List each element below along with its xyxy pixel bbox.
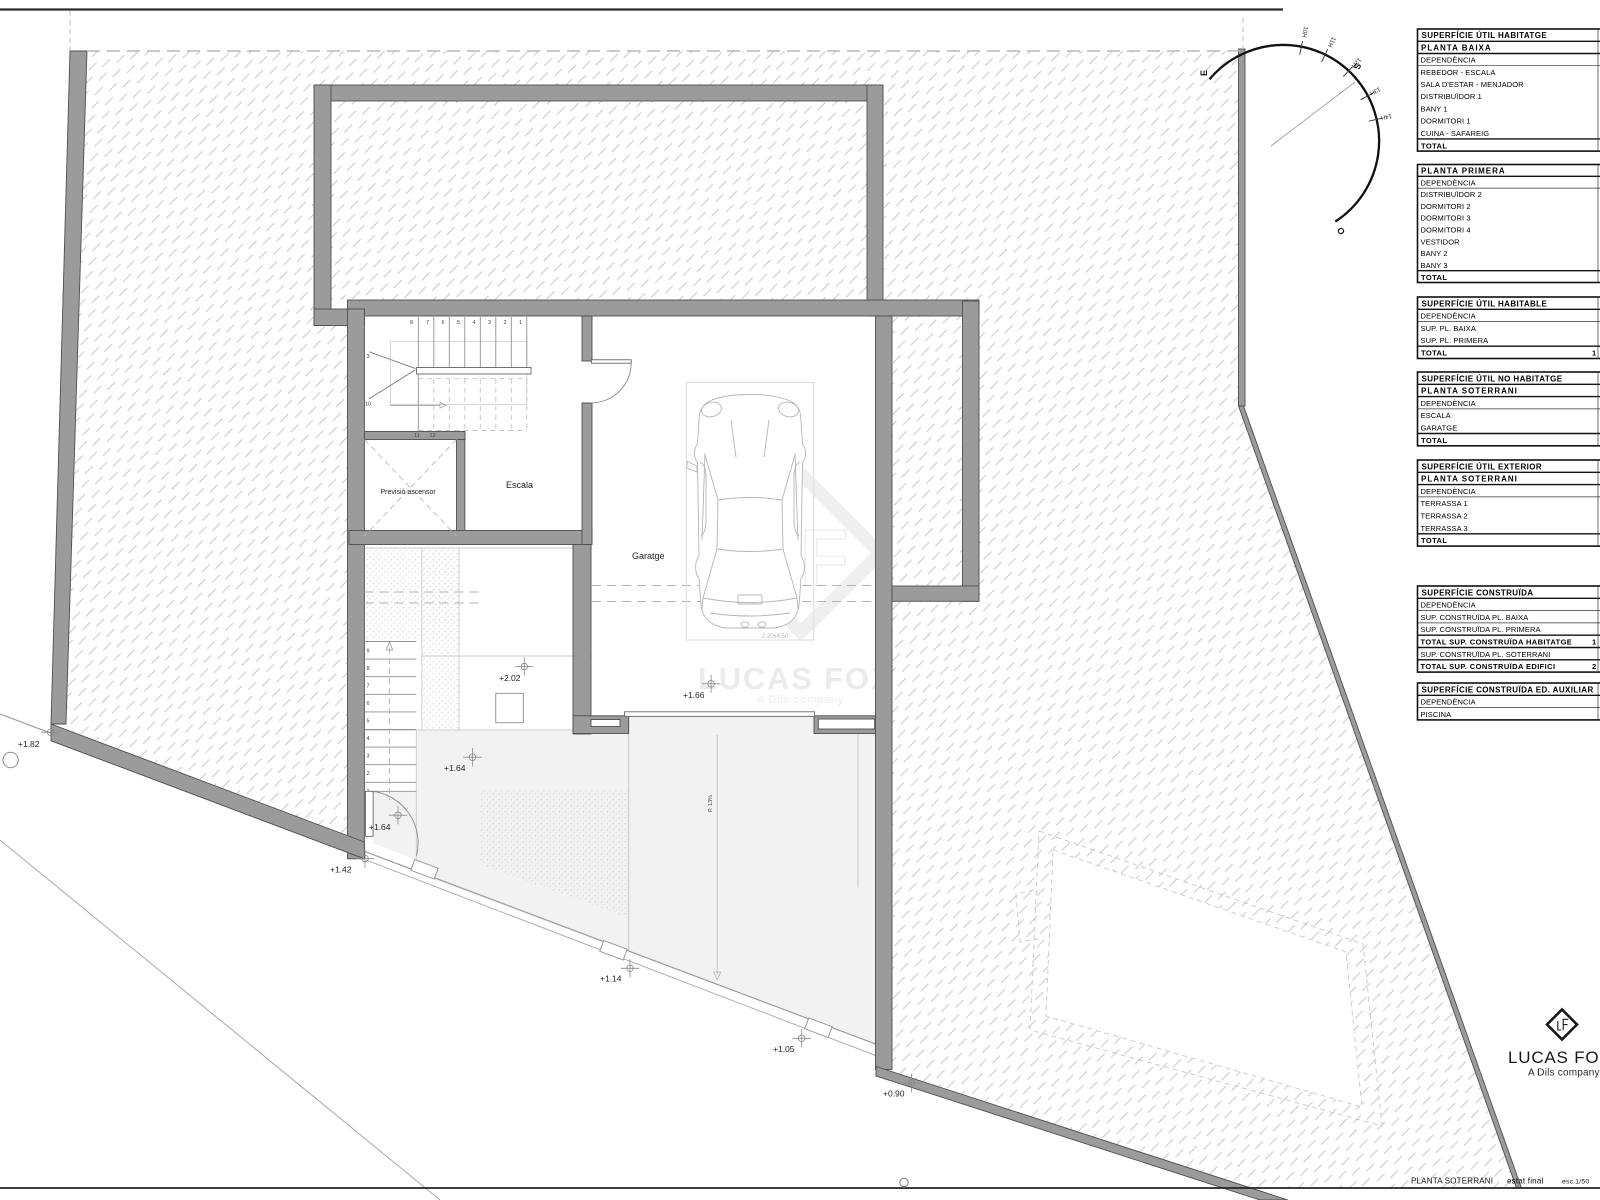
svg-text:Escala: Escala: [506, 480, 533, 490]
svg-text:TOTAL SUP. CONSTRUÏDA EDIFICI: TOTAL SUP. CONSTRUÏDA EDIFICI: [1421, 662, 1556, 671]
svg-text:9: 9: [367, 649, 370, 655]
svg-text:TOTAL: TOTAL: [1421, 536, 1447, 545]
svg-text:SUP. CONSTRUÏDA PL. BAIXA: SUP. CONSTRUÏDA PL. BAIXA: [1421, 613, 1529, 622]
svg-text:10: 10: [365, 402, 371, 408]
svg-text:1: 1: [1592, 638, 1597, 647]
svg-text:5: 5: [367, 719, 370, 725]
svg-text:BANY 2: BANY 2: [1421, 249, 1448, 258]
svg-text:PLANTA SOTERRANI: PLANTA SOTERRANI: [1411, 1177, 1493, 1186]
svg-text:DEPENDÈNCIA: DEPENDÈNCIA: [1421, 601, 1476, 610]
svg-text:PLANTA PRIMERA: PLANTA PRIMERA: [1421, 167, 1506, 176]
svg-text:SUPERFÍCIE ÚTIL HABITATGE: SUPERFÍCIE ÚTIL HABITATGE: [1422, 31, 1548, 40]
svg-text:4: 4: [473, 320, 476, 326]
svg-text:DEPENDÈNCIA: DEPENDÈNCIA: [1421, 312, 1476, 321]
svg-text:VESTIDOR: VESTIDOR: [1421, 237, 1461, 246]
svg-text:SUP. PL. PRIMERA: SUP. PL. PRIMERA: [1421, 336, 1489, 345]
svg-text:TOTAL: TOTAL: [1421, 436, 1447, 445]
svg-text:DORMITORI 4: DORMITORI 4: [1421, 226, 1471, 235]
svg-text:SUP. PL. BAIXA: SUP. PL. BAIXA: [1421, 324, 1476, 333]
svg-text:6: 6: [442, 320, 445, 326]
svg-text:LUCAS FOX: LUCAS FOX: [698, 661, 893, 696]
svg-text:BANY 1: BANY 1: [1421, 104, 1448, 113]
svg-text:TERRASSA 3: TERRASSA 3: [1421, 524, 1468, 533]
svg-text:BANY 3: BANY 3: [1421, 261, 1448, 270]
svg-text:2.20x4.50: 2.20x4.50: [762, 634, 789, 640]
svg-text:TERRASSA 1: TERRASSA 1: [1421, 499, 1468, 508]
svg-text:7: 7: [426, 320, 429, 326]
svg-text:+1.64: +1.64: [369, 822, 391, 832]
svg-text:A Dils company: A Dils company: [1528, 1068, 1600, 1079]
svg-text:DEPENDÈNCIA: DEPENDÈNCIA: [1421, 487, 1476, 496]
svg-text:SUP. CONSTRUÏDA PL. SOTERRANI: SUP. CONSTRUÏDA PL. SOTERRANI: [1421, 650, 1551, 659]
svg-text:1: 1: [1592, 349, 1597, 358]
svg-text:DORMITORI 3: DORMITORI 3: [1421, 214, 1471, 223]
svg-text:2: 2: [367, 771, 370, 777]
svg-text:2: 2: [504, 320, 507, 326]
svg-text:3: 3: [367, 754, 370, 760]
svg-text:DEPENDÈNCIA: DEPENDÈNCIA: [1421, 399, 1476, 408]
svg-text:SUPERFÍCIE ÚTIL EXTERIOR: SUPERFÍCIE ÚTIL EXTERIOR: [1422, 462, 1543, 471]
svg-text:+1.42: +1.42: [330, 865, 352, 875]
svg-text:8: 8: [367, 666, 370, 672]
svg-text:PLANTA BAIXA: PLANTA BAIXA: [1421, 43, 1492, 52]
svg-text:DORMITORI 2: DORMITORI 2: [1421, 202, 1471, 211]
svg-text:DEPENDÈNCIA: DEPENDÈNCIA: [1421, 698, 1476, 707]
svg-text:+2.02: +2.02: [499, 673, 521, 683]
svg-text:PLANTA SOTERRANI: PLANTA SOTERRANI: [1421, 475, 1518, 484]
svg-text:DISTRIBUÏDOR 1: DISTRIBUÏDOR 1: [1421, 92, 1482, 101]
svg-text:5: 5: [457, 320, 460, 326]
svg-text:DISTRIBUÏDOR 2: DISTRIBUÏDOR 2: [1421, 190, 1482, 199]
svg-text:PLANTA SOTERRANI: PLANTA SOTERRANI: [1421, 387, 1518, 396]
svg-text:SUPERFÍCIE CONSTRUÏDA ED. AUXI: SUPERFÍCIE CONSTRUÏDA ED. AUXILIAR: [1422, 685, 1594, 694]
svg-text:TOTAL: TOTAL: [1421, 141, 1447, 150]
svg-text:TERRASSA 2: TERRASSA 2: [1421, 512, 1468, 521]
svg-text:ESCALA: ESCALA: [1421, 411, 1451, 420]
svg-text:esc.1/50: esc.1/50: [1562, 1179, 1589, 1186]
svg-text:TOTAL SUP. CONSTRUÏDA HABITATG: TOTAL SUP. CONSTRUÏDA HABITATGE: [1421, 638, 1573, 647]
svg-text:2: 2: [1592, 662, 1597, 671]
svg-text:TOTAL: TOTAL: [1421, 349, 1447, 358]
svg-text:3: 3: [488, 320, 491, 326]
svg-text:Garatge: Garatge: [632, 551, 665, 561]
svg-text:1: 1: [519, 320, 522, 326]
svg-text:TOTAL: TOTAL: [1421, 273, 1447, 282]
svg-text:6: 6: [367, 701, 370, 707]
svg-text:8: 8: [410, 320, 413, 326]
svg-text:DEPENDÈNCIA: DEPENDÈNCIA: [1421, 56, 1476, 65]
svg-text:DORMITORI 1: DORMITORI 1: [1421, 117, 1471, 126]
svg-text:+1.82: +1.82: [18, 739, 40, 749]
svg-text:LUCAS FOX: LUCAS FOX: [1508, 1048, 1600, 1067]
svg-text:SUPERFÍCIE CONSTRUÏDA: SUPERFÍCIE CONSTRUÏDA: [1422, 588, 1534, 597]
svg-text:CUINA - SAFAREIG: CUINA - SAFAREIG: [1421, 129, 1490, 138]
svg-text:REBEDOR - ESCALA: REBEDOR - ESCALA: [1421, 68, 1496, 77]
svg-text:SALA D'ESTAR - MENJADOR: SALA D'ESTAR - MENJADOR: [1421, 80, 1525, 89]
svg-text:GARATGE: GARATGE: [1421, 424, 1458, 433]
svg-text:4: 4: [367, 736, 370, 742]
svg-text:SUP. CONSTRUÏDA PL. PRIMERA: SUP. CONSTRUÏDA PL. PRIMERA: [1421, 625, 1541, 634]
svg-text:12: 12: [430, 433, 436, 439]
svg-text:E: E: [1199, 70, 1209, 76]
svg-text:SUPERFÍCIE ÚTIL NO HABITATGE: SUPERFÍCIE ÚTIL NO HABITATGE: [1422, 374, 1563, 383]
svg-text:DEPENDÈNCIA: DEPENDÈNCIA: [1421, 178, 1476, 187]
svg-text:7: 7: [367, 684, 370, 690]
svg-text:+1.66: +1.66: [683, 690, 705, 700]
svg-text:+1.64: +1.64: [444, 763, 466, 773]
svg-text:Previsió ascensor: Previsió ascensor: [381, 489, 437, 496]
svg-text:3: 3: [367, 354, 370, 360]
svg-text:A Dils company: A Dils company: [757, 694, 844, 706]
svg-text:PISCINA: PISCINA: [1421, 710, 1452, 719]
svg-text:estat final: estat final: [1507, 1177, 1543, 1186]
svg-text:+1.14: +1.14: [600, 974, 622, 984]
svg-text:+1.05: +1.05: [773, 1044, 795, 1054]
svg-text:P. 13%: P. 13%: [708, 795, 714, 812]
svg-text:SUPERFÍCIE ÚTIL HABITABLE: SUPERFÍCIE ÚTIL HABITABLE: [1422, 299, 1548, 308]
svg-text:+0.90: +0.90: [883, 1089, 905, 1099]
svg-text:11: 11: [414, 433, 420, 439]
